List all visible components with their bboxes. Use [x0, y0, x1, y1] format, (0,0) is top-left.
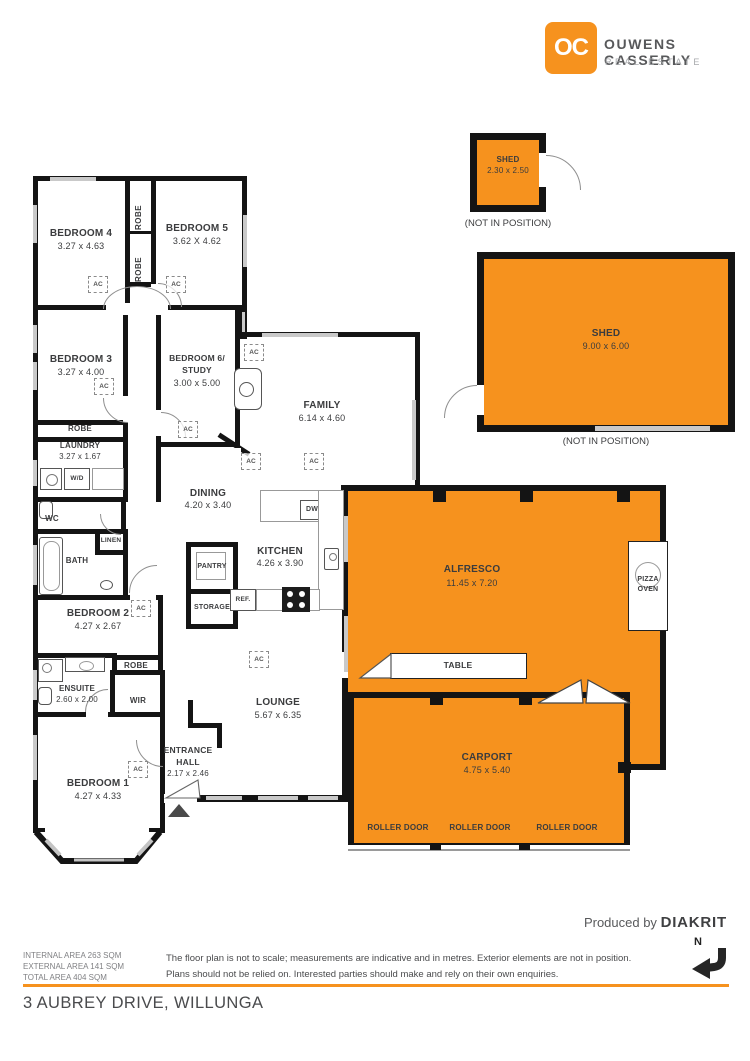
entrance-stub-c: [217, 723, 222, 748]
ensuite-shower: [38, 659, 63, 682]
bathtub: [39, 537, 63, 595]
producer-name: DIAKRIT: [661, 914, 727, 931]
label-bedroom2: BEDROOM 2: [67, 608, 129, 619]
bed6-door-gap: [156, 410, 161, 436]
disclaimer-line2: Plans should not be relied on. Intereste…: [166, 967, 706, 983]
ac-unit: AC: [88, 276, 108, 293]
dims-entrance: 2.17 x 2.46: [167, 769, 209, 778]
label-kitchen: KITCHEN: [257, 546, 303, 557]
bay-window: [30, 825, 170, 870]
label-linen: LINEN: [101, 537, 122, 544]
dims-family: 6.14 x 4.60: [299, 413, 346, 423]
north-arrow-icon: [686, 946, 730, 982]
ac-unit: AC: [128, 761, 148, 778]
shed-small-label: SHED: [496, 155, 519, 164]
window: [33, 205, 37, 243]
dims-bedroom1: 4.27 x 4.33: [75, 791, 122, 801]
dims-ensuite: 2.60 x 2.00: [56, 695, 98, 704]
pillar: [433, 491, 446, 502]
shed-small-note: (NOT IN POSITION): [465, 218, 551, 229]
ac-unit: AC: [178, 421, 198, 438]
brand-logo-text: OC: [554, 34, 588, 62]
ac-unit: AC: [131, 600, 151, 617]
dims-bedroom5: 3.62 X 4.62: [173, 236, 221, 246]
pillar: [430, 694, 443, 705]
window: [242, 312, 245, 332]
fridge-label: REF.: [236, 596, 251, 603]
ac-unit: AC: [241, 453, 261, 470]
window: [258, 796, 298, 800]
bath-basin: [100, 580, 113, 590]
footer-accent-rule: [23, 984, 729, 987]
label-bedroom5: BEDROOM 5: [166, 223, 228, 234]
carport-gate: [530, 674, 638, 708]
label-roller-door-1: ROLLER DOOR: [367, 823, 428, 832]
label-robe2: ROBE: [124, 661, 148, 670]
internal-area: INTERNAL AREA 263 SQM: [23, 950, 124, 961]
window: [308, 796, 338, 800]
pier: [430, 843, 441, 850]
label-wir: WIR: [130, 696, 146, 705]
window: [33, 545, 37, 585]
table-label: TABLE: [444, 660, 473, 670]
dims-lounge: 5.67 x 6.35: [255, 710, 302, 720]
label-bedroom1: BEDROOM 1: [67, 778, 129, 789]
dims-bedroom6: 3.00 x 5.00: [174, 378, 221, 388]
ac-unit: AC: [249, 651, 269, 668]
dims-bedroom2: 4.27 x 2.67: [75, 621, 122, 631]
dishwasher-label: DW: [306, 506, 318, 513]
produced-by: Produced by DIAKRIT: [0, 914, 727, 931]
shed-large-label: SHED: [592, 328, 621, 339]
window: [33, 735, 37, 780]
pier: [519, 843, 530, 850]
ensuite-toilet: [38, 687, 52, 705]
dims-dining: 4.20 x 3.40: [185, 500, 232, 510]
dims-bedroom3: 3.27 x 4.00: [58, 367, 105, 377]
total-area: TOTAL AREA 404 SQM: [23, 972, 124, 983]
label-ensuite: ENSUITE: [59, 684, 95, 693]
washer-dryer-label: W/D: [70, 475, 83, 482]
laundry-trough: [40, 468, 62, 490]
label-bedroom6: BEDROOM 6/: [169, 353, 225, 363]
dims-bedroom4: 3.27 x 4.63: [58, 241, 105, 251]
label-alfresco: ALFRESCO: [444, 564, 501, 575]
label-lounge: LOUNGE: [256, 697, 300, 708]
shed-large-roller-opening: [595, 426, 710, 431]
shed-small-dims: 2.30 x 2.50: [487, 166, 529, 175]
dims-alfresco: 11.45 x 7.20: [446, 578, 497, 588]
laundry-bench: [92, 468, 124, 490]
ac-unit: AC: [244, 344, 264, 361]
dims-carport: 4.75 x 5.40: [464, 765, 511, 775]
external-area: EXTERNAL AREA 141 SQM: [23, 961, 124, 972]
hall-wall-south-of-bed6: [156, 447, 161, 502]
disclaimer-line1: The floor plan is not to scale; measurem…: [166, 951, 706, 967]
produced-by-text: Produced by: [584, 915, 657, 930]
shed-small-door-gap: [539, 153, 546, 187]
carport-ground-line: [348, 849, 630, 851]
floorplan-page: OC OUWENS CASSERLY REAL ESTATE SHED 2.30…: [0, 0, 750, 1061]
label-bedroom4: BEDROOM 4: [50, 228, 112, 239]
kitchen-sink: [324, 548, 339, 570]
window: [206, 796, 242, 800]
label-laundry: LAUNDRY: [60, 441, 100, 450]
fireplace: [234, 368, 262, 410]
dims-kitchen: 4.26 x 3.90: [257, 558, 304, 568]
label-entrance-2: HALL: [176, 757, 199, 767]
label-bedroom6-2: STUDY: [182, 365, 212, 375]
label-storage: STORAGE: [194, 604, 230, 611]
disclaimer: The floor plan is not to scale; measurem…: [166, 951, 706, 983]
pillar: [618, 762, 631, 773]
label-carport: CARPORT: [462, 752, 513, 763]
window: [412, 400, 416, 480]
window: [33, 460, 37, 486]
ac-unit: AC: [166, 276, 186, 293]
dims-laundry: 3.27 x 1.67: [59, 452, 101, 461]
label-pantry: PANTRY: [197, 563, 226, 570]
pizza-oven-label1: PIZZA: [637, 576, 658, 583]
brand-logo: OC: [545, 22, 597, 74]
window: [33, 362, 37, 390]
shed-large-door-gap: [477, 385, 484, 415]
room-wir: [110, 670, 165, 717]
property-address: 3 AUBREY DRIVE, WILLUNGA: [23, 994, 263, 1013]
alfresco-door-wedge: [356, 650, 396, 682]
label-robe-lower: ROBE: [134, 238, 143, 282]
label-wc: WC: [45, 514, 59, 523]
label-entrance: ENTRANCE: [164, 745, 213, 755]
shed-large-dims: 9.00 x 6.00: [583, 341, 630, 351]
label-robe-strip: ROBE: [68, 424, 92, 433]
ensuite-vanity: [65, 657, 105, 672]
pizza-oven-circle: [635, 562, 661, 588]
label-roller-door-2: ROLLER DOOR: [449, 823, 510, 832]
window: [50, 177, 96, 181]
pillar: [520, 491, 533, 502]
window: [33, 670, 37, 700]
label-bath: BATH: [66, 556, 88, 565]
robe-divider-wall: [127, 231, 154, 234]
ac-unit: AC: [304, 453, 324, 470]
label-bedroom3: BEDROOM 3: [50, 354, 112, 365]
label-family: FAMILY: [304, 400, 341, 411]
stove-cooktop: [282, 587, 310, 612]
area-summary: INTERNAL AREA 263 SQM EXTERNAL AREA 141 …: [23, 950, 124, 983]
entry-door-wedge: [162, 774, 204, 802]
shed-large-note: (NOT IN POSITION): [563, 436, 649, 447]
label-dining: DINING: [190, 488, 226, 499]
pillar: [617, 491, 630, 502]
window: [243, 215, 247, 267]
brand-tagline: REAL ESTATE: [605, 57, 703, 67]
label-roller-door-3: ROLLER DOOR: [536, 823, 597, 832]
label-robe-upper: ROBE: [134, 186, 143, 230]
window: [262, 333, 338, 337]
pizza-oven-label2: OVEN: [638, 586, 659, 593]
window: [33, 325, 37, 353]
north-indicator: N: [686, 936, 730, 984]
entry-arrow: [168, 804, 190, 817]
ac-unit: AC: [94, 378, 114, 395]
